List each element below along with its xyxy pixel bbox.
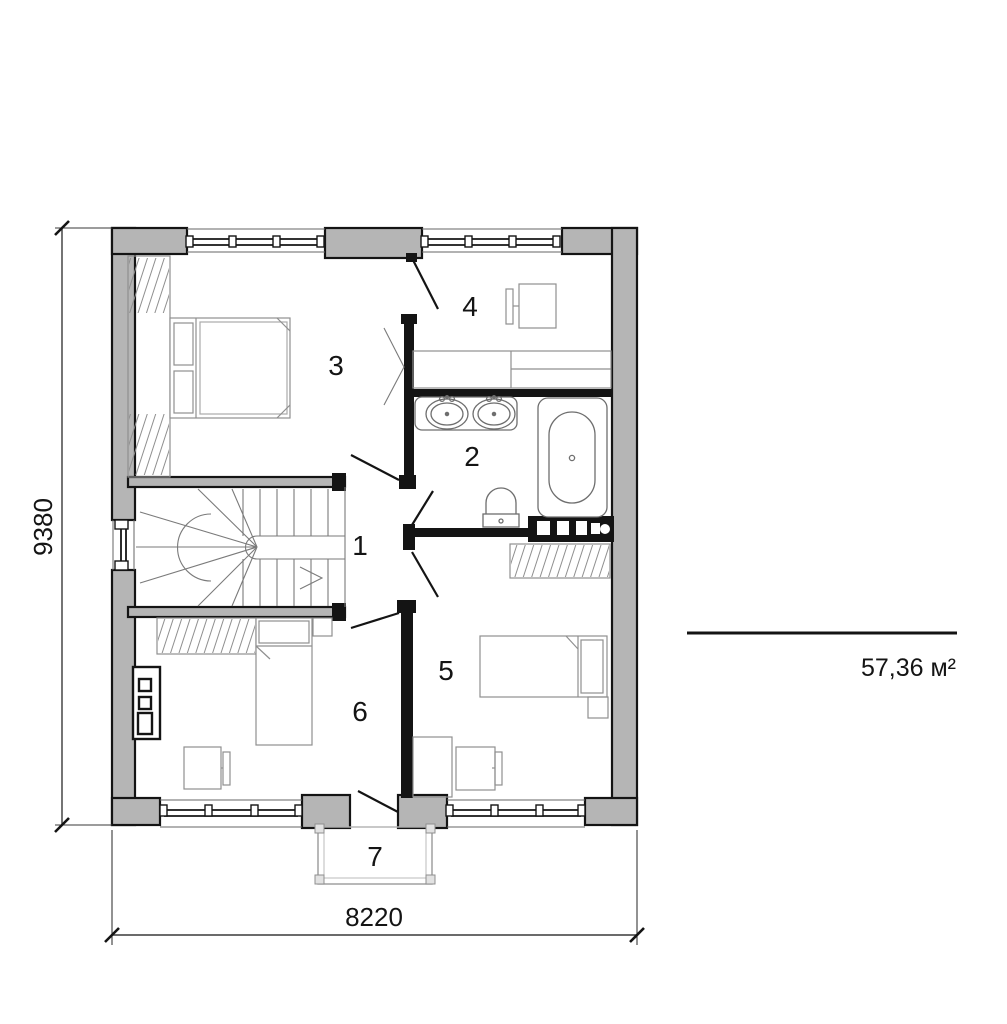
door-bathroom	[412, 491, 433, 525]
total-area-label: 57,36 м²	[861, 654, 956, 682]
dimension-width-label: 8220	[345, 902, 403, 932]
window-top-right	[421, 229, 562, 252]
bathroom-fixtures	[415, 396, 607, 527]
wall-bath-bottom	[414, 528, 530, 537]
nightstand	[588, 697, 608, 718]
counter	[413, 351, 611, 388]
double-bed	[170, 318, 290, 418]
single-bed	[256, 618, 312, 745]
radiator	[528, 516, 614, 542]
room-label-bedroom-right: 5	[438, 655, 454, 686]
door-balcony	[358, 791, 398, 812]
room-label-hall: 1	[352, 530, 368, 561]
wall-cap	[332, 603, 346, 621]
wall-cap	[332, 473, 346, 491]
window-bottom-right	[446, 800, 585, 827]
staircase	[136, 487, 345, 607]
window-bottom-left	[160, 800, 302, 827]
floor-plan-page: 1 2 3 4 5 6 7 8220 9380 57,36 м²	[0, 0, 1007, 1024]
bottom-left-corner	[112, 798, 160, 825]
balcony-pillar-right	[398, 795, 447, 828]
room-label-bedroom-master: 3	[328, 350, 344, 381]
wall-room6-room5	[401, 602, 413, 798]
door-room4	[413, 260, 438, 309]
desk-with-monitor	[506, 284, 556, 328]
floor-plan-drawing: 1 2 3 4 5 6 7 8220 9380 57,36 м²	[0, 0, 1007, 1024]
opening-mark	[384, 328, 404, 405]
room-label-bathroom: 2	[464, 441, 480, 472]
room4-furniture	[413, 284, 611, 388]
cabinet	[413, 737, 452, 797]
desk-with-monitor	[456, 747, 502, 790]
wall-stairs-bottom	[128, 607, 345, 617]
desk-with-monitor	[184, 747, 230, 789]
wall-cap	[403, 524, 415, 550]
area-annotation: 57,36 м²	[687, 633, 957, 682]
door-room6	[351, 613, 399, 628]
wall-room3-room4	[404, 316, 414, 482]
wall-cap	[397, 600, 416, 613]
bathtub	[538, 398, 607, 517]
toilet	[483, 488, 519, 527]
wall-cap	[399, 475, 416, 489]
room-label-balcony: 7	[367, 841, 383, 872]
top-left-pillar	[112, 228, 187, 254]
wardrobe	[157, 618, 256, 654]
wall-stairs-top	[128, 477, 345, 487]
right-wall	[612, 228, 637, 825]
single-bed	[480, 636, 607, 697]
dimension-left	[55, 221, 112, 832]
nightstand	[313, 618, 332, 636]
chimney-shaft	[133, 667, 160, 739]
window-top-left	[186, 229, 325, 252]
room-label-office: 4	[462, 291, 478, 322]
room-label-bedroom-left: 6	[352, 696, 368, 727]
window-left	[113, 520, 134, 570]
wall-room4-bath	[414, 389, 612, 397]
door-room5	[412, 552, 438, 597]
room6-furniture	[133, 618, 332, 789]
vanity-double-sink	[415, 396, 517, 430]
wall-cap	[401, 314, 417, 324]
door-room3	[351, 455, 399, 480]
door-hinge-block	[406, 253, 417, 262]
room3-furniture	[128, 256, 290, 477]
balcony-pillar-left	[302, 795, 350, 828]
dimension-height-label: 9380	[28, 498, 58, 556]
bottom-right-corner	[585, 798, 637, 825]
wardrobe	[510, 544, 610, 578]
